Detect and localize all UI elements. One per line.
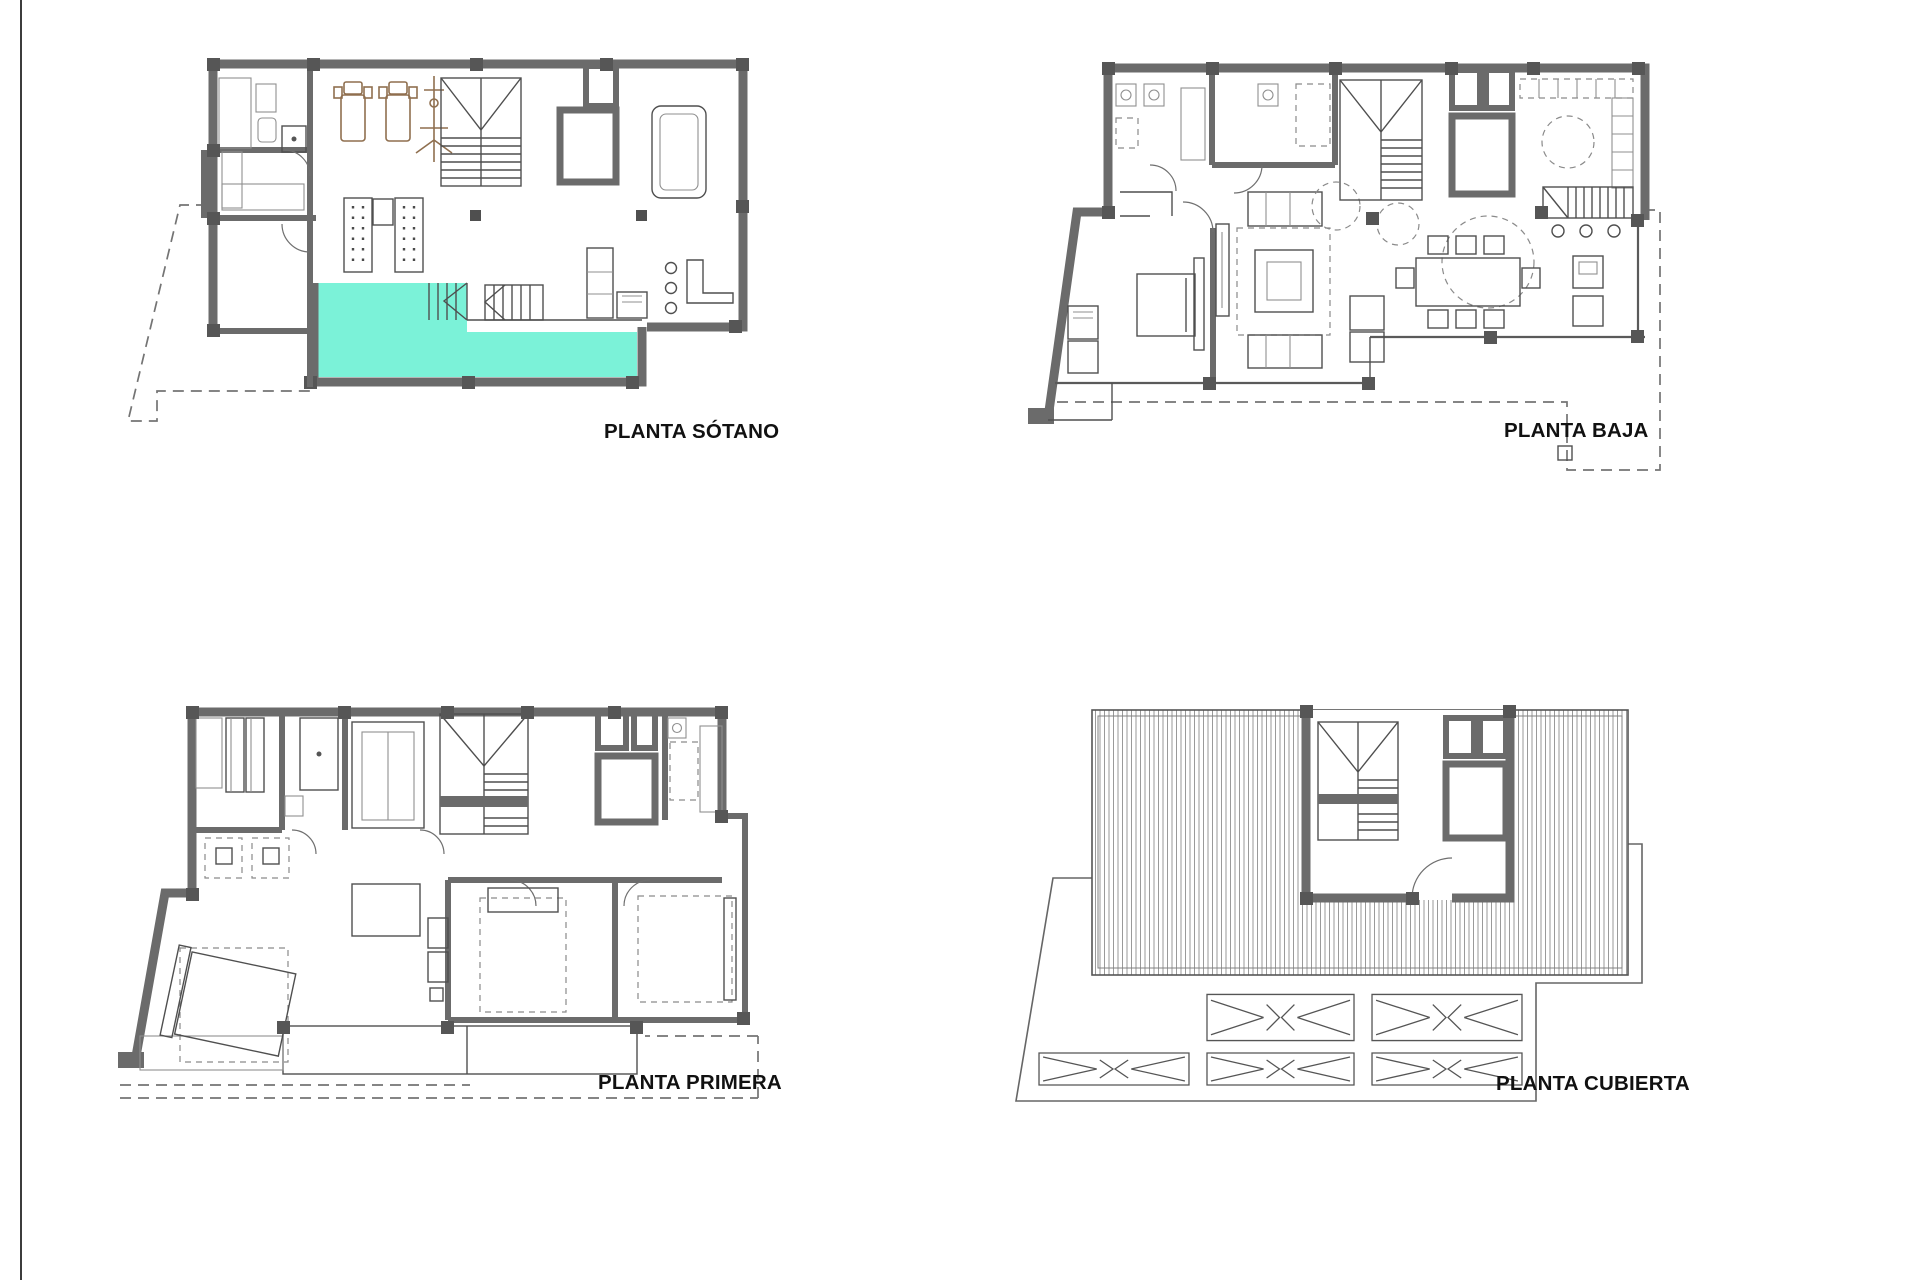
staircase [440,714,528,834]
elevator [560,66,616,182]
bathroom-fixtures [256,84,310,252]
boundary-marker [1558,446,1572,460]
bathroom [665,712,722,820]
staircase [441,78,521,186]
columns [1102,62,1645,390]
floor-drain [470,210,481,221]
wardrobe [352,722,424,828]
wall-bump [201,150,213,218]
plan-baja-drawing [1028,62,1660,470]
sofa [587,248,647,318]
plan-label-primera: PLANTA PRIMERA [598,1071,782,1095]
closet-nook [1120,192,1172,216]
bedroom-walls [448,816,745,1020]
bathroom [285,712,345,854]
elevator [598,712,655,822]
plan-sotano-drawing [128,58,749,421]
sauna-bench [222,152,242,208]
deck-terrace [140,1026,637,1074]
plot-boundary-dashed [128,205,310,421]
bed [638,896,736,1002]
kitchen [1520,79,1633,188]
bedroom [1068,202,1229,383]
staircase [1340,80,1422,200]
plan-sheet: PLANTA SÓTANO PLANTA BAJA PLANTA PRIMERA… [0,0,1920,1280]
living-room [1237,182,1419,368]
bed-master [160,945,297,1062]
pool-stair [485,285,543,320]
plan-label-sotano: PLANTA SÓTANO [604,420,779,444]
bathroom [1116,68,1335,193]
floor-drain [636,210,647,221]
wall-foot [1028,408,1054,424]
massage-tables [344,198,423,272]
elevator [1452,70,1512,194]
pergola-panels [1039,994,1522,1085]
plan-label-cubierta: PLANTA CUBIERTA [1496,1072,1690,1096]
bar-counter [666,260,734,314]
bathroom [192,712,289,878]
plan-primera-drawing [118,706,758,1098]
gym-equipment [334,76,452,162]
game-table [652,106,706,198]
stairs-down [1535,187,1633,219]
stair-void [352,884,420,936]
bed [480,888,566,1012]
plan-label-baja: PLANTA BAJA [1504,419,1649,443]
plan-cubierta-drawing [1016,705,1642,1101]
bar-stools [1552,225,1620,326]
dining-set [1396,216,1540,328]
sauna-bench [222,184,304,210]
stair-core [1300,705,1516,905]
hatched-area [219,78,251,148]
pool-water [318,332,637,377]
angled-wall [1048,212,1112,418]
exterior-wall [1108,68,1645,220]
swimming-pool [304,283,642,389]
